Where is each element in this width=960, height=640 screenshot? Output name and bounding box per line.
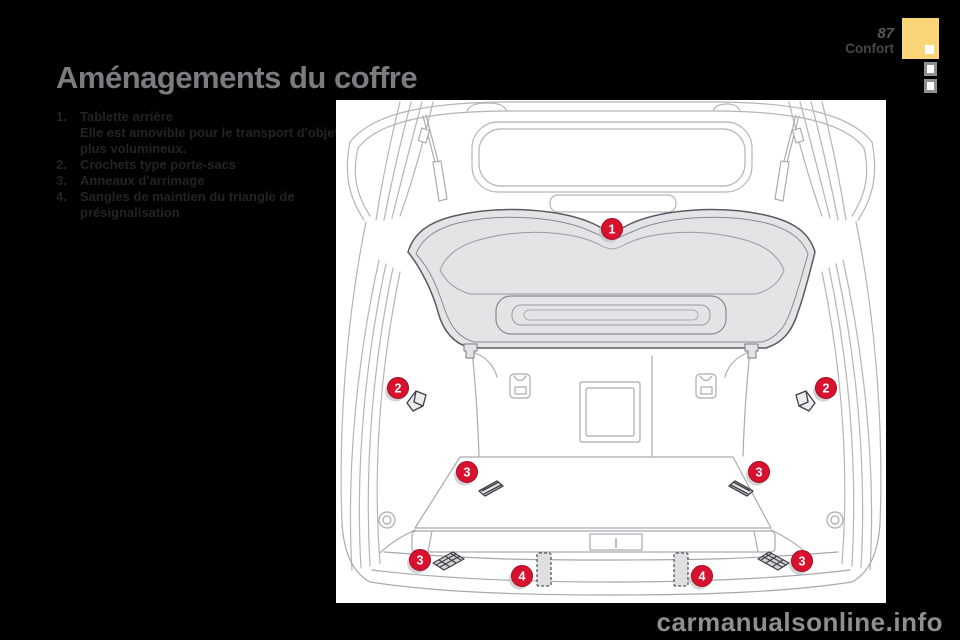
rear-window xyxy=(472,122,752,192)
legend-list: 1. Tablette arrière Elle est amovible po… xyxy=(56,109,356,221)
legend-item-label: Sangles de maintien du triangle de prési… xyxy=(80,189,295,220)
callout-marker-2-right: 2 xyxy=(813,378,837,402)
tow-eye-left xyxy=(379,512,395,528)
svg-text:2: 2 xyxy=(823,382,830,396)
svg-text:3: 3 xyxy=(799,555,806,569)
triangle-strap-right xyxy=(674,553,688,586)
callout-marker-3-bottom-left: 3 xyxy=(407,550,431,574)
triangle-strap-left xyxy=(537,553,551,586)
sill-panel xyxy=(412,531,775,552)
svg-text:4: 4 xyxy=(699,570,706,584)
callout-marker-4-left: 4 xyxy=(509,566,533,590)
svg-text:3: 3 xyxy=(464,466,471,480)
svg-text:4: 4 xyxy=(519,570,526,584)
page-number: 87 xyxy=(845,26,894,41)
chapter-tab xyxy=(924,62,937,76)
callout-marker-3-mid-right: 3 xyxy=(746,462,770,486)
gas-struts xyxy=(418,115,804,201)
watermark: carmanualsonline.info xyxy=(657,607,943,638)
storage-net-icon-right xyxy=(758,552,789,570)
ski-hatch xyxy=(580,382,640,442)
page-title: Aménagements du coffre xyxy=(56,60,417,96)
legend-item-number: 4. xyxy=(56,189,80,221)
lashing-ring-icon-right xyxy=(729,481,753,496)
shelf-clip-right xyxy=(745,344,758,358)
callout-marker-3-mid-left: 3 xyxy=(454,462,478,486)
section-label: Confort xyxy=(845,41,894,56)
legend-item-number: 3. xyxy=(56,173,80,189)
legend-item: 2. Crochets type porte-sacs xyxy=(56,157,356,173)
chapter-tab-active xyxy=(902,18,939,59)
svg-text:2: 2 xyxy=(395,382,402,396)
legend-item-label: Crochets type porte-sacs xyxy=(80,157,236,172)
tow-eye-right xyxy=(827,512,843,528)
bag-hook-icon-right xyxy=(796,391,815,411)
legend-item-number: 2. xyxy=(56,157,80,173)
legend-item-number: 1. xyxy=(56,109,80,157)
legend-item: 1. Tablette arrière Elle est amovible po… xyxy=(56,109,356,157)
shelf-clip-left xyxy=(464,344,477,358)
legend-item: 4. Sangles de maintien du triangle de pr… xyxy=(56,189,356,221)
lashing-ring-icon-left xyxy=(479,481,503,496)
tailgate-outline xyxy=(347,102,874,220)
chapter-tab xyxy=(924,79,937,93)
chapter-tab-dot xyxy=(925,45,934,54)
svg-text:3: 3 xyxy=(417,554,424,568)
manual-page: Aménagements du coffre 1. Tablette arriè… xyxy=(0,0,960,640)
seat-backs xyxy=(472,350,750,456)
boot-diagram: 1 2 2 3 xyxy=(336,100,886,603)
legend-item: 3. Anneaux d'arrimage xyxy=(56,173,356,189)
legend-item-label: Anneaux d'arrimage xyxy=(80,173,204,188)
tailgate-handle-recess xyxy=(550,195,676,212)
callout-marker-2-left: 2 xyxy=(385,378,409,402)
svg-text:3: 3 xyxy=(756,466,763,480)
callout-marker-4-right: 4 xyxy=(689,566,713,590)
svg-text:1: 1 xyxy=(609,223,616,237)
callout-marker-3-bottom-right: 3 xyxy=(789,551,813,575)
storage-net-icon-left xyxy=(433,552,464,570)
legend-item-description: Elle est amovible pour le transport d'ob… xyxy=(80,125,356,157)
bag-hook-icon-left xyxy=(407,391,426,411)
page-header-corner: 87 Confort xyxy=(845,26,894,56)
legend-item-label: Tablette arrière xyxy=(80,109,173,124)
